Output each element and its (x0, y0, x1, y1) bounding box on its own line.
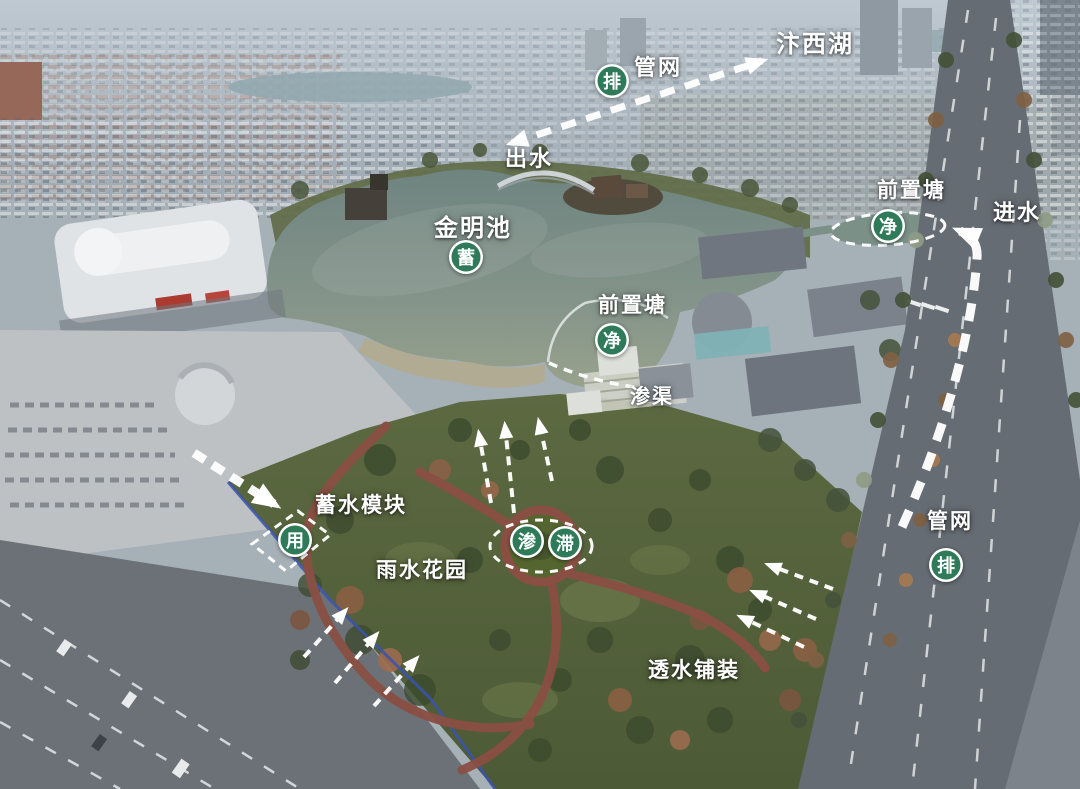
badge-store: 蓄 (449, 240, 483, 274)
badge-purify-right: 净 (871, 209, 905, 243)
badge-detain: 滞 (548, 526, 582, 560)
label-forebay-mid: 前置塘 (598, 295, 667, 316)
label-dest-lake: 汴西湖 (776, 32, 854, 56)
label-pipe-network-right: 管网 (927, 511, 973, 532)
label-pipe-network-top: 管网 (634, 58, 682, 80)
label-inflow: 进水 (993, 203, 1041, 225)
label-rain-garden: 雨水花园 (376, 560, 468, 581)
badge-use: 用 (278, 523, 312, 557)
badge-discharge-right: 排 (929, 548, 963, 582)
label-main-lake: 金明池 (434, 216, 512, 240)
label-storage-module: 蓄水模块 (315, 495, 407, 516)
badge-infiltrate: 渗 (510, 524, 544, 558)
label-outflow: 出水 (505, 149, 553, 171)
label-infiltration-channel: 渗渠 (630, 386, 674, 406)
badge-purify-mid: 净 (595, 323, 629, 357)
annotated-aerial-photo: 汴西湖 管网 出水 金明池 前置塘 进水 前置塘 渗渠 蓄水模块 雨水花园 透水… (0, 0, 1080, 789)
label-permeable-paving: 透水铺装 (648, 660, 740, 681)
label-forebay-right: 前置塘 (877, 180, 946, 201)
aerial-photo-base (0, 0, 1080, 789)
badge-discharge-top: 排 (595, 64, 629, 98)
